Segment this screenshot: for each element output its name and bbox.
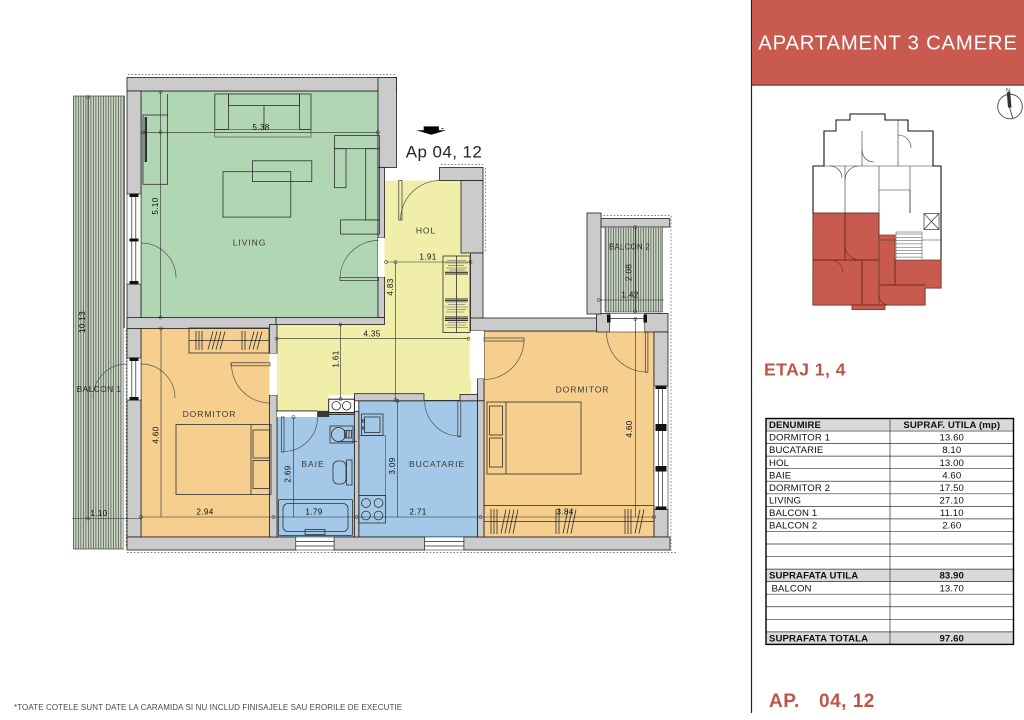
svg-text:BALCON 2: BALCON 2 — [769, 521, 817, 532]
svg-text:4.60: 4.60 — [152, 426, 161, 443]
svg-text:DENUMIRE: DENUMIRE — [769, 420, 821, 431]
svg-text:4.60: 4.60 — [942, 470, 961, 481]
svg-text:3.84: 3.84 — [556, 508, 573, 517]
svg-text:1.79: 1.79 — [305, 508, 322, 517]
svg-text:13.70: 13.70 — [939, 583, 964, 594]
svg-text:11.10: 11.10 — [940, 508, 964, 519]
svg-text:LIVING: LIVING — [233, 238, 267, 248]
svg-text:2.71: 2.71 — [409, 508, 426, 517]
svg-text:SUPRAFATA TOTALA: SUPRAFATA TOTALA — [769, 633, 868, 644]
svg-text:Ap 04, 12: Ap 04, 12 — [406, 143, 482, 162]
svg-text:N: N — [1006, 88, 1010, 94]
svg-text:DORMITOR: DORMITOR — [183, 409, 237, 419]
svg-text:2.60: 2.60 — [942, 521, 961, 532]
svg-text:BALCON 1: BALCON 1 — [769, 508, 817, 519]
svg-text:13.00: 13.00 — [939, 458, 964, 469]
svg-text:83.90: 83.90 — [939, 571, 964, 582]
svg-text:04, 12: 04, 12 — [819, 691, 875, 712]
svg-text:5.10: 5.10 — [151, 197, 160, 214]
svg-text:DORMITOR 2: DORMITOR 2 — [769, 483, 830, 494]
svg-text:97.60: 97.60 — [939, 633, 964, 644]
svg-text:DORMITOR: DORMITOR — [556, 385, 610, 395]
svg-text:BUCATARIE: BUCATARIE — [769, 445, 823, 456]
svg-text:10.13: 10.13 — [78, 311, 87, 333]
svg-text:13.60: 13.60 — [939, 433, 964, 444]
svg-text:HOL: HOL — [769, 458, 790, 469]
svg-text:27.10: 27.10 — [939, 495, 964, 506]
svg-text:2.69: 2.69 — [284, 465, 293, 482]
svg-text:4.83: 4.83 — [386, 278, 395, 295]
svg-text:17.50: 17.50 — [939, 483, 964, 494]
svg-text:5.38: 5.38 — [252, 123, 269, 132]
svg-text:2.08: 2.08 — [625, 264, 634, 281]
svg-text:BAIE: BAIE — [769, 470, 791, 481]
svg-text:AP.: AP. — [769, 691, 800, 712]
svg-text:3.09: 3.09 — [388, 457, 397, 474]
svg-text:BAIE: BAIE — [301, 459, 324, 469]
svg-text:DORMITOR 1: DORMITOR 1 — [769, 433, 830, 444]
svg-text:4.35: 4.35 — [363, 330, 380, 339]
svg-text:HOL: HOL — [416, 226, 436, 236]
svg-text:1.42: 1.42 — [621, 291, 638, 300]
svg-text:8.10: 8.10 — [942, 445, 961, 456]
svg-text:BALCON 1: BALCON 1 — [77, 384, 122, 394]
svg-text:BUCATARIE: BUCATARIE — [409, 459, 465, 469]
svg-text:ETAJ 1, 4: ETAJ 1, 4 — [764, 360, 846, 380]
svg-text:2.94: 2.94 — [196, 508, 213, 517]
svg-text:BALCON 2: BALCON 2 — [609, 243, 650, 252]
svg-text:BALCON: BALCON — [772, 583, 812, 594]
svg-text:LIVING: LIVING — [769, 495, 801, 506]
svg-text:1.10: 1.10 — [90, 509, 107, 518]
svg-text:APARTAMENT 3 CAMERE: APARTAMENT 3 CAMERE — [758, 33, 1017, 55]
svg-text:SUPRAFATA UTILA: SUPRAFATA UTILA — [769, 571, 858, 582]
svg-text:1.91: 1.91 — [419, 253, 436, 262]
svg-text:4.60: 4.60 — [625, 420, 634, 437]
svg-text:*TOATE COTELE SUNT DATE LA CAR: *TOATE COTELE SUNT DATE LA CARAMIDA SI N… — [14, 703, 402, 712]
svg-text:1.61: 1.61 — [332, 350, 341, 367]
svg-text:SUPRAF. UTILA (mp): SUPRAF. UTILA (mp) — [903, 420, 1000, 431]
